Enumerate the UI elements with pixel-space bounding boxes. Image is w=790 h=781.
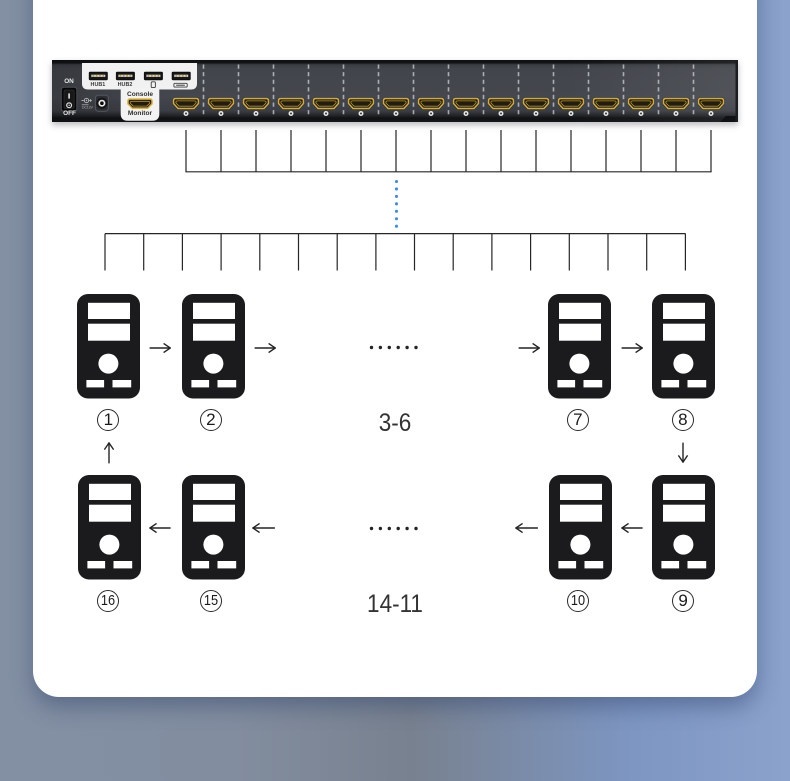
svg-text:DC12V: DC12V — [82, 106, 94, 110]
